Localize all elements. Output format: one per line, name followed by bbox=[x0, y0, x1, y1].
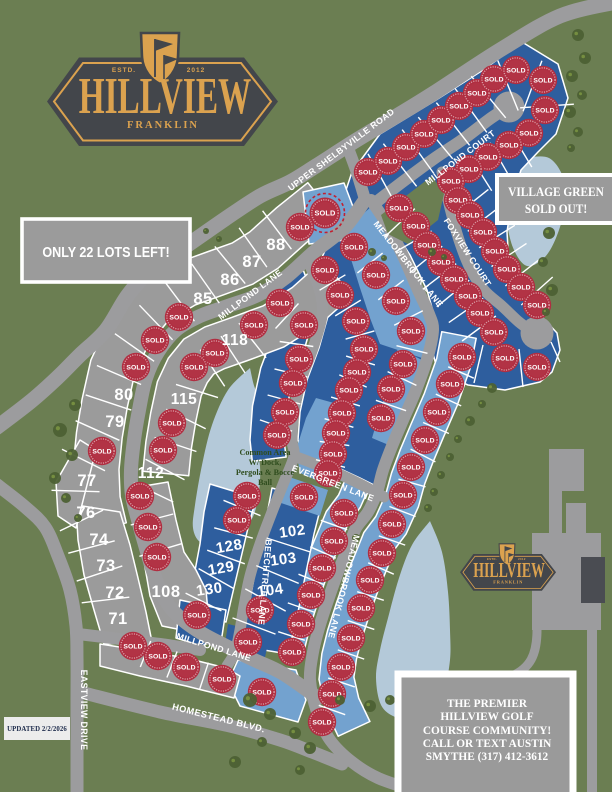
svg-text:SOLD: SOLD bbox=[184, 364, 203, 371]
svg-text:118: 118 bbox=[222, 332, 249, 349]
svg-text:SOLD: SOLD bbox=[126, 364, 145, 371]
svg-text:SOLD: SOLD bbox=[393, 361, 412, 368]
svg-text:UPDATED 2/2/2026: UPDATED 2/2/2026 bbox=[7, 726, 67, 733]
svg-text:SOLD: SOLD bbox=[431, 117, 450, 124]
svg-text:SOLD: SOLD bbox=[382, 521, 401, 528]
svg-text:SOLD: SOLD bbox=[153, 447, 172, 454]
svg-text:SOLD: SOLD bbox=[169, 314, 188, 321]
svg-text:SOLD: SOLD bbox=[176, 664, 195, 671]
svg-text:SOLD: SOLD bbox=[294, 494, 313, 501]
svg-text:SOLD: SOLD bbox=[533, 77, 552, 84]
svg-text:SOLD: SOLD bbox=[360, 577, 379, 584]
svg-text:SOLD: SOLD bbox=[485, 248, 504, 255]
svg-text:SOLD: SOLD bbox=[330, 292, 349, 299]
svg-text:SOLD: SOLD bbox=[351, 605, 370, 612]
svg-text:SOLD: SOLD bbox=[511, 284, 530, 291]
svg-text:SOLD: SOLD bbox=[396, 144, 415, 151]
svg-text:SOLD: SOLD bbox=[527, 302, 546, 309]
svg-text:SOLD: SOLD bbox=[386, 298, 405, 305]
svg-text:SOLD: SOLD bbox=[444, 276, 463, 283]
svg-text:88: 88 bbox=[266, 236, 285, 254]
svg-text:SOLD: SOLD bbox=[431, 259, 450, 266]
svg-text:SOLD: SOLD bbox=[291, 621, 310, 628]
svg-text:FRANKLIN: FRANKLIN bbox=[127, 120, 199, 131]
svg-text:SOLD: SOLD bbox=[473, 229, 492, 236]
svg-text:SOLD: SOLD bbox=[366, 272, 385, 279]
svg-text:SOLD: SOLD bbox=[372, 550, 391, 557]
svg-text:Pergola & Bocce: Pergola & Bocce bbox=[236, 468, 295, 477]
svg-text:SOLD: SOLD bbox=[452, 354, 471, 361]
svg-text:SOLD: SOLD bbox=[275, 409, 294, 416]
svg-text:85: 85 bbox=[193, 290, 212, 308]
svg-text:80: 80 bbox=[114, 386, 133, 404]
svg-text:THE PREMIER: THE PREMIER bbox=[447, 698, 528, 710]
svg-text:SOLD: SOLD bbox=[401, 328, 420, 335]
svg-text:SOLD: SOLD bbox=[417, 242, 436, 249]
svg-text:SMYTHE (317) 412-3612: SMYTHE (317) 412-3612 bbox=[426, 751, 549, 763]
svg-text:SOLD: SOLD bbox=[267, 432, 286, 439]
svg-text:SOLD: SOLD bbox=[389, 205, 408, 212]
svg-text:SOLD: SOLD bbox=[519, 130, 538, 137]
svg-text:SOLD: SOLD bbox=[478, 154, 497, 161]
svg-text:SOLD: SOLD bbox=[347, 369, 366, 376]
svg-text:SOLD: SOLD bbox=[499, 142, 518, 149]
svg-text:SOLD: SOLD bbox=[406, 223, 425, 230]
svg-text:77: 77 bbox=[77, 472, 96, 490]
svg-text:SOLD: SOLD bbox=[145, 337, 164, 344]
svg-text:CALL OR TEXT AUSTIN: CALL OR TEXT AUSTIN bbox=[423, 738, 552, 750]
svg-text:EASTVIEW DRIVE: EASTVIEW DRIVE bbox=[79, 670, 89, 751]
svg-text:HILLVIEW: HILLVIEW bbox=[79, 68, 252, 125]
svg-text:108: 108 bbox=[151, 583, 180, 601]
svg-text:SOLD: SOLD bbox=[527, 364, 546, 371]
svg-text:SOLD: SOLD bbox=[344, 244, 363, 251]
svg-text:SOLD: SOLD bbox=[244, 322, 263, 329]
svg-text:SOLD: SOLD bbox=[315, 267, 334, 274]
svg-text:SOLD: SOLD bbox=[270, 300, 289, 307]
svg-text:SOLD: SOLD bbox=[346, 318, 365, 325]
svg-text:SOLD: SOLD bbox=[130, 493, 149, 500]
svg-text:SOLD: SOLD bbox=[162, 420, 181, 427]
svg-text:SOLD: SOLD bbox=[92, 448, 111, 455]
svg-text:SOLD: SOLD bbox=[401, 464, 420, 471]
svg-text:W/ Dock,: W/ Dock, bbox=[249, 458, 282, 467]
svg-text:COURSE COMMUNITY!: COURSE COMMUNITY! bbox=[423, 725, 551, 737]
svg-text:SOLD: SOLD bbox=[484, 329, 503, 336]
svg-text:SOLD: SOLD bbox=[282, 649, 301, 656]
svg-text:SOLD OUT!: SOLD OUT! bbox=[525, 201, 587, 216]
svg-text:SOLD: SOLD bbox=[381, 386, 400, 393]
svg-text:SOLD: SOLD bbox=[331, 664, 350, 671]
svg-text:SOLD: SOLD bbox=[535, 107, 554, 114]
svg-text:SOLD: SOLD bbox=[312, 565, 331, 572]
svg-text:SOLD: SOLD bbox=[227, 517, 246, 524]
svg-text:SOLD: SOLD bbox=[334, 510, 353, 517]
svg-text:HILLVIEW: HILLVIEW bbox=[473, 558, 545, 582]
svg-text:SOLD: SOLD bbox=[312, 719, 331, 726]
svg-text:SOLD: SOLD bbox=[484, 76, 503, 83]
svg-text:SOLD: SOLD bbox=[323, 451, 342, 458]
svg-text:SOLD: SOLD bbox=[449, 103, 468, 110]
svg-text:SOLD: SOLD bbox=[393, 492, 412, 499]
svg-text:SOLD: SOLD bbox=[460, 212, 479, 219]
svg-text:SOLD: SOLD bbox=[414, 131, 433, 138]
svg-text:SOLD: SOLD bbox=[427, 409, 446, 416]
svg-text:87: 87 bbox=[242, 253, 261, 271]
svg-text:SOLD: SOLD bbox=[440, 381, 459, 388]
svg-text:SOLD: SOLD bbox=[290, 224, 309, 231]
svg-text:86: 86 bbox=[220, 271, 239, 289]
svg-text:74: 74 bbox=[89, 531, 109, 549]
svg-text:SOLD: SOLD bbox=[341, 635, 360, 642]
svg-text:SOLD: SOLD bbox=[123, 643, 142, 650]
svg-text:79: 79 bbox=[105, 413, 124, 431]
svg-text:SOLD: SOLD bbox=[324, 538, 343, 545]
svg-text:SOLD: SOLD bbox=[326, 430, 345, 437]
svg-text:SOLD: SOLD bbox=[138, 524, 157, 531]
svg-text:SOLD: SOLD bbox=[506, 67, 525, 74]
svg-text:SOLD: SOLD bbox=[378, 158, 397, 165]
svg-text:SOLD: SOLD bbox=[495, 355, 514, 362]
svg-text:SOLD: SOLD bbox=[458, 293, 477, 300]
svg-text:SOLD: SOLD bbox=[358, 169, 377, 176]
svg-text:SOLD: SOLD bbox=[497, 266, 516, 273]
svg-text:VILLAGE GREEN: VILLAGE GREEN bbox=[508, 184, 604, 199]
svg-text:SOLD: SOLD bbox=[294, 322, 313, 329]
svg-text:112: 112 bbox=[138, 465, 165, 482]
svg-text:72: 72 bbox=[105, 584, 124, 602]
svg-text:SOLD: SOLD bbox=[315, 209, 336, 218]
svg-text:SOLD: SOLD bbox=[441, 178, 460, 185]
svg-text:SOLD: SOLD bbox=[147, 554, 166, 561]
svg-text:SOLD: SOLD bbox=[238, 639, 257, 646]
svg-text:SOLD: SOLD bbox=[148, 653, 167, 660]
svg-text:SOLD: SOLD bbox=[187, 612, 206, 619]
svg-text:SOLD: SOLD bbox=[212, 676, 231, 683]
svg-text:SOLD: SOLD bbox=[301, 592, 320, 599]
svg-text:SOLD: SOLD bbox=[339, 387, 358, 394]
svg-text:SOLD: SOLD bbox=[470, 310, 489, 317]
svg-text:73: 73 bbox=[96, 557, 115, 575]
svg-text:115: 115 bbox=[171, 391, 198, 408]
svg-text:SOLD: SOLD bbox=[205, 350, 224, 357]
svg-text:Ball: Ball bbox=[258, 478, 273, 487]
svg-text:Common Area: Common Area bbox=[239, 448, 290, 457]
svg-text:SOLD: SOLD bbox=[371, 415, 390, 422]
svg-text:SOLD: SOLD bbox=[354, 346, 373, 353]
svg-text:71: 71 bbox=[108, 610, 127, 628]
svg-text:SOLD: SOLD bbox=[415, 437, 434, 444]
svg-text:SOLD: SOLD bbox=[289, 356, 308, 363]
svg-text:FRANKLIN: FRANKLIN bbox=[493, 579, 523, 584]
svg-text:HILLVIEW GOLF: HILLVIEW GOLF bbox=[440, 711, 533, 723]
svg-text:ONLY 22 LOTS LEFT!: ONLY 22 LOTS LEFT! bbox=[42, 243, 169, 260]
svg-text:SOLD: SOLD bbox=[252, 689, 271, 696]
svg-text:SOLD: SOLD bbox=[283, 380, 302, 387]
svg-text:SOLD: SOLD bbox=[237, 493, 256, 500]
svg-text:SOLD: SOLD bbox=[467, 90, 486, 97]
svg-text:SOLD: SOLD bbox=[332, 410, 351, 417]
